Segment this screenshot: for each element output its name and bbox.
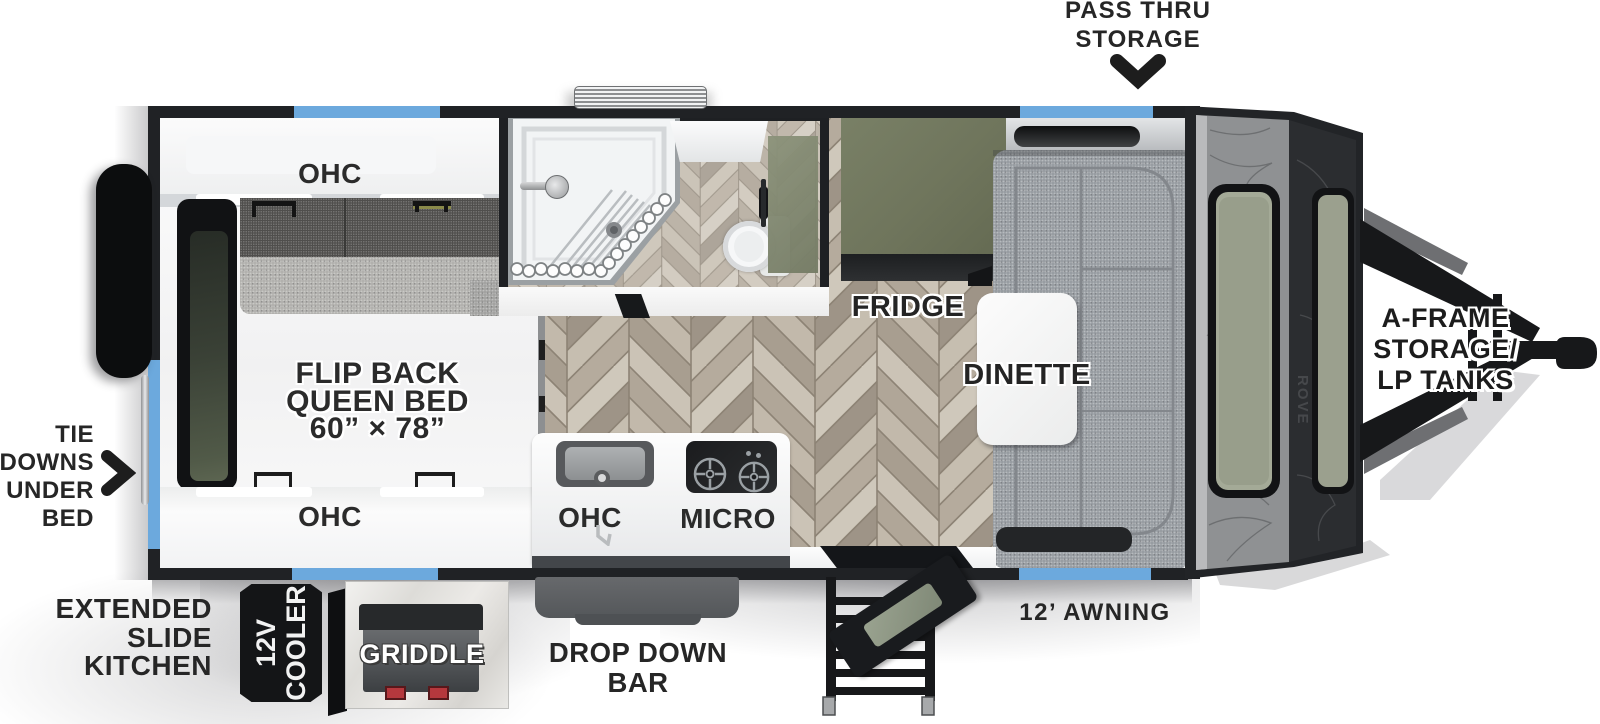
svg-text:ROVE: ROVE [1294, 375, 1311, 426]
